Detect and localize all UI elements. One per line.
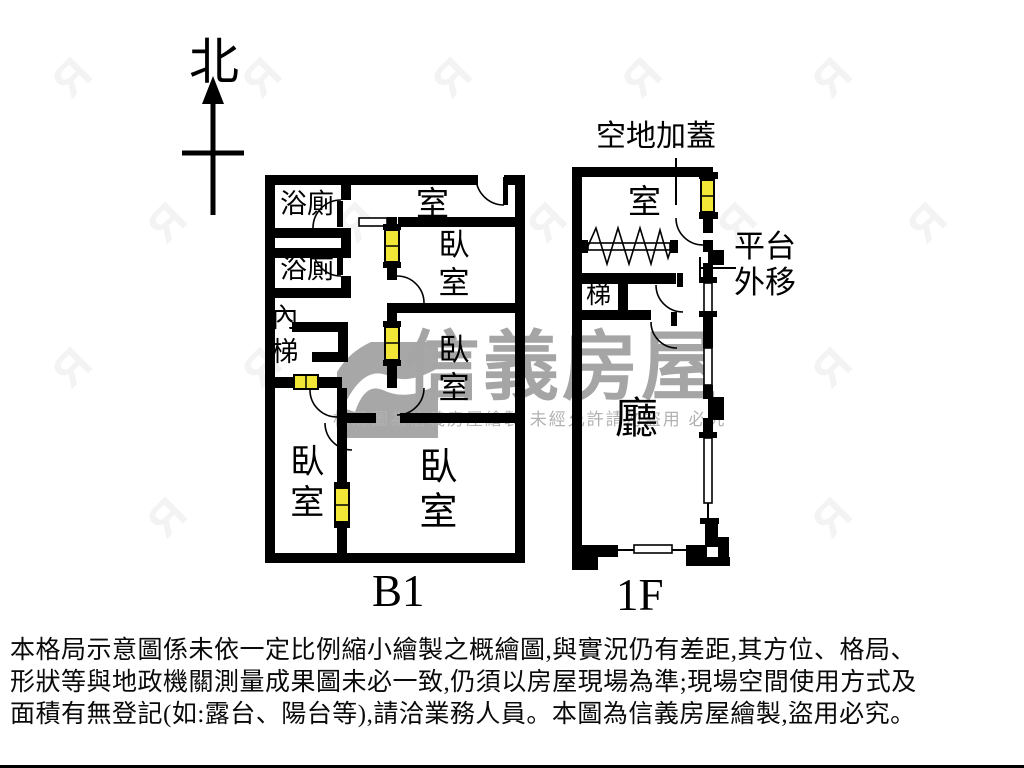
wall xyxy=(387,268,397,280)
window-open xyxy=(704,438,712,503)
door-leaf xyxy=(503,177,508,205)
wall xyxy=(705,524,718,547)
b1-bedroom-bottom-right: 臥室 xyxy=(413,446,453,538)
door-arc xyxy=(397,276,424,303)
wall xyxy=(686,557,730,566)
door-leaf xyxy=(671,312,677,326)
wall xyxy=(337,528,347,553)
door-leaf xyxy=(337,201,343,227)
north-arrow xyxy=(182,76,244,215)
wall xyxy=(265,288,351,298)
wall xyxy=(341,276,351,298)
wall xyxy=(515,175,525,563)
door-arc xyxy=(676,218,703,245)
wall xyxy=(572,545,598,570)
wall xyxy=(337,388,347,486)
door-arc xyxy=(310,390,337,417)
b1-bedroom-upper-right: 臥室 xyxy=(434,228,467,308)
b1-room-top: 室 xyxy=(416,188,449,223)
f1-annotation-rooftop-addition: 空地加蓋 xyxy=(596,121,716,153)
f1-floor-label: 1F xyxy=(616,572,664,619)
wall xyxy=(703,263,713,278)
wall xyxy=(347,413,376,423)
window-open xyxy=(704,283,712,312)
wall xyxy=(708,397,724,420)
wall xyxy=(265,228,351,238)
wall xyxy=(265,553,525,563)
b1-room-bath-top: 浴廁 xyxy=(280,190,334,218)
window-cap xyxy=(699,277,717,283)
door-arc xyxy=(397,388,424,415)
f1-annotation-platform-line1: 平台 xyxy=(734,231,796,264)
wall xyxy=(265,175,478,185)
window-cap xyxy=(383,360,401,366)
wall xyxy=(703,219,713,233)
door-leaf xyxy=(677,273,683,287)
b1-bedroom-bottom-left: 臥室 xyxy=(285,443,321,527)
window-cap xyxy=(699,172,718,179)
door-arc xyxy=(656,285,683,312)
wall xyxy=(400,413,515,423)
disclaimer-line2: 形狀等與地政機關測量成果圖未必一致,仍須以房屋現場為準;現場空間使用方式及 xyxy=(10,662,917,698)
door-arc xyxy=(476,177,504,205)
wall xyxy=(265,377,295,388)
window-cap xyxy=(699,212,718,219)
wall xyxy=(598,545,618,557)
wall xyxy=(703,317,713,348)
wall xyxy=(318,377,342,388)
f1-annotation-platform-line2: 外移 xyxy=(734,267,796,300)
window-cap xyxy=(699,432,717,438)
b1-room-inner-stairs: 內梯 xyxy=(268,303,296,373)
b1-floor-label: B1 xyxy=(372,568,425,615)
wall xyxy=(341,228,351,248)
b1-bedroom-mid-right: 臥室 xyxy=(434,333,467,413)
partition-end xyxy=(580,240,588,253)
disclaimer-line3: 面積有無登記(如:露台、陽台等),請洽業務人員。本圖為信義房屋繪製,盜用必究。 xyxy=(10,694,916,730)
window-cap xyxy=(383,262,401,268)
wall xyxy=(572,310,651,320)
disclaimer-line1: 本格局示意圖係未依一定比例縮小繪製之概繪圖,與實況仍有差距,其方位、格局、 xyxy=(10,630,916,666)
wall xyxy=(708,250,724,265)
window-cap xyxy=(700,518,719,524)
f1-living-room: 廳 xyxy=(615,397,658,442)
window-open xyxy=(704,348,712,385)
f1-room-top: 室 xyxy=(628,186,661,221)
window-cap xyxy=(699,311,717,317)
north-label: 北 xyxy=(189,36,239,89)
b1-room-bath-bottom: 浴廁 xyxy=(280,255,334,283)
wall xyxy=(572,167,582,570)
wall xyxy=(703,385,713,399)
window-open xyxy=(634,545,672,553)
wall xyxy=(572,167,713,177)
window-cap xyxy=(334,522,350,528)
wall xyxy=(686,545,707,557)
wall xyxy=(341,175,351,200)
f1-room-stairs: 梯 xyxy=(586,283,611,309)
wall xyxy=(387,366,397,388)
door-leaf xyxy=(337,249,343,275)
wall xyxy=(312,352,348,362)
window-open xyxy=(359,218,387,226)
